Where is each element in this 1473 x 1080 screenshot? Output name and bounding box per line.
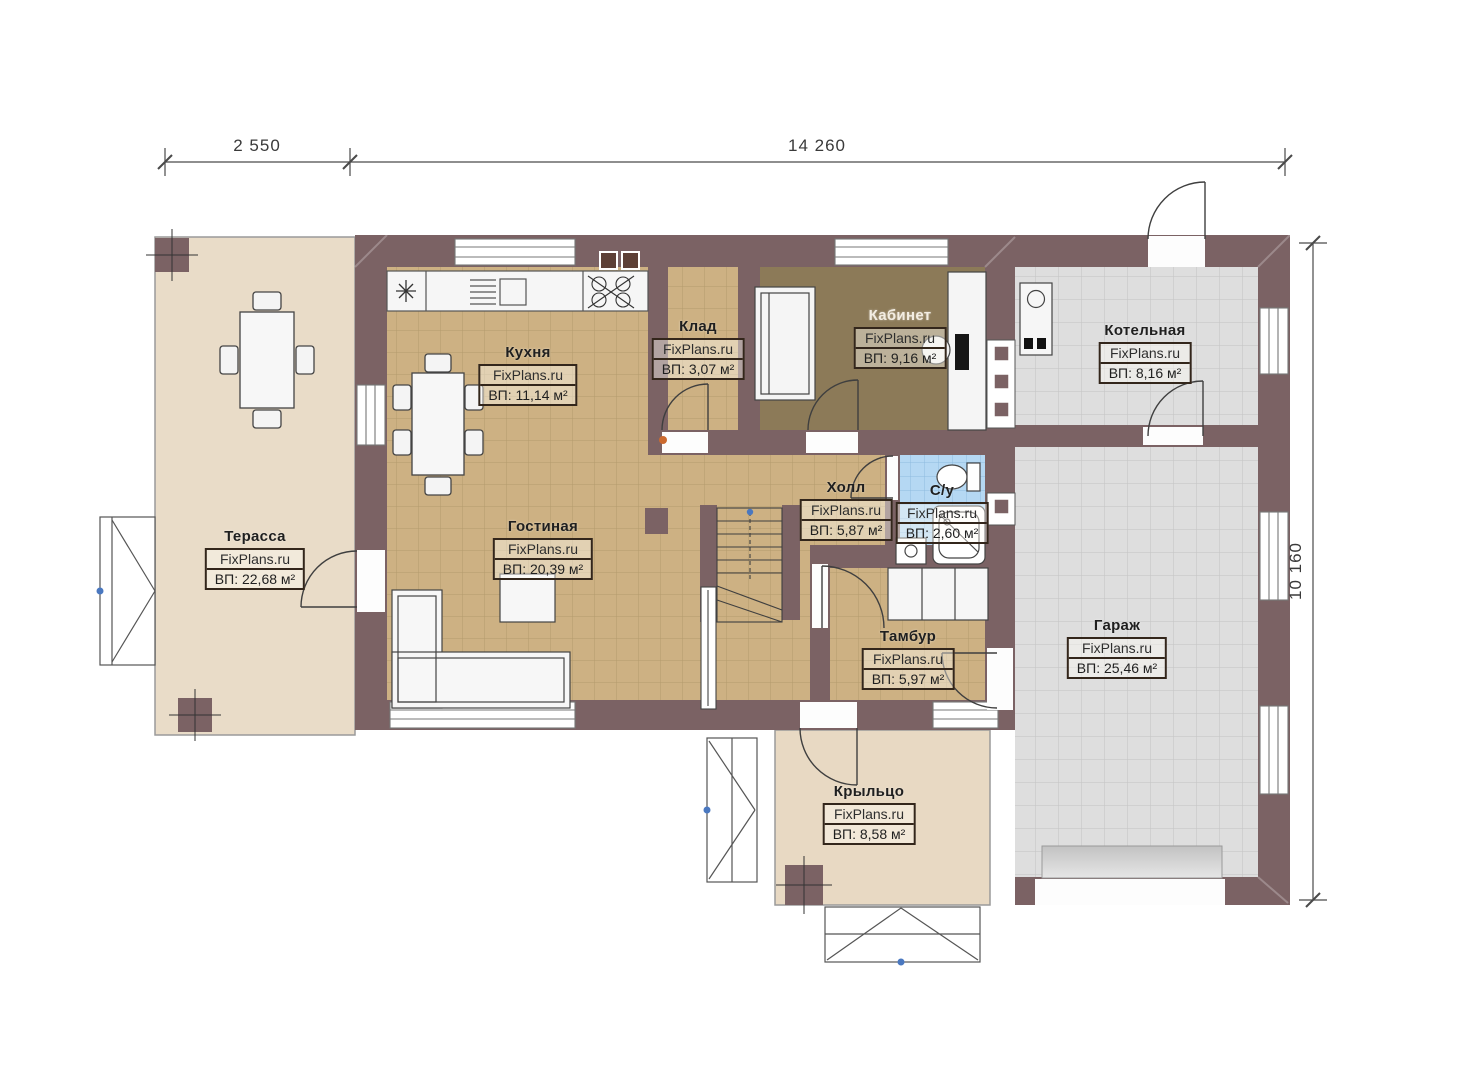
room-label-vestibule: Тамбур FixPlans.ru ВП: 5,97 м² [862, 628, 955, 690]
office-sofa [755, 287, 815, 400]
room-label-porch: Крыльцо FixPlans.ru ВП: 8,58 м² [823, 783, 916, 845]
room-name: Котельная [1099, 322, 1192, 339]
room-label-office: Кабинет FixPlans.ru ВП: 9,16 м² [854, 307, 947, 369]
watermark: FixPlans.ru [1069, 639, 1165, 659]
room-area: ВП: 20,39 м² [495, 560, 591, 578]
room-info-box: FixPlans.ru ВП: 5,97 м² [862, 648, 955, 690]
room-info-box: FixPlans.ru ВП: 22,68 м² [205, 548, 305, 590]
room-name: Кабинет [854, 307, 947, 324]
coffee-table [500, 574, 555, 622]
room-info-box: FixPlans.ru ВП: 8,58 м² [823, 803, 916, 845]
porch-area [704, 730, 991, 966]
dimension-top-main: 14 260 [788, 136, 846, 156]
room-label-kitchen: Кухня FixPlans.ru ВП: 11,14 м² [478, 344, 577, 406]
room-area: ВП: 3,07 м² [654, 360, 743, 378]
room-info-box: FixPlans.ru ВП: 11,14 м² [478, 364, 577, 406]
kitchen-counter [387, 271, 648, 311]
room-area: ВП: 8,16 м² [1101, 364, 1190, 382]
room-area: ВП: 8,58 м² [825, 825, 914, 843]
garage-east-window-2 [1260, 706, 1288, 794]
watermark: FixPlans.ru [864, 650, 953, 670]
room-info-box: FixPlans.ru ВП: 5,87 м² [800, 499, 893, 541]
room-area: ВП: 25,46 м² [1069, 659, 1165, 677]
monitor-icon [955, 334, 969, 370]
watermark: FixPlans.ru [480, 366, 575, 386]
room-label-living-room: Гостиная FixPlans.ru ВП: 20,39 м² [493, 518, 593, 580]
room-area: ВП: 2,60 м² [898, 524, 987, 542]
floor-plan-page: 2 550 14 260 10 160 Терасса FixPlans.ru … [0, 0, 1473, 1080]
threshold-marker [659, 436, 667, 444]
watermark: FixPlans.ru [898, 504, 987, 524]
watermark: FixPlans.ru [495, 540, 591, 560]
side-steps [704, 738, 758, 882]
room-name: Терасса [205, 528, 305, 545]
boiler-east-window [1260, 308, 1288, 374]
room-info-box: FixPlans.ru ВП: 25,46 м² [1067, 637, 1167, 679]
room-name: Холл [800, 479, 893, 496]
boiler-unit [1020, 283, 1052, 355]
room-label-terrace: Терасса FixPlans.ru ВП: 22,68 м² [205, 528, 305, 590]
room-info-box: FixPlans.ru ВП: 2,60 м² [896, 502, 989, 544]
room-label-hall: Холл FixPlans.ru ВП: 5,87 м² [800, 479, 893, 541]
room-info-box: FixPlans.ru ВП: 8,16 м² [1099, 342, 1192, 384]
dimension-right-side: 10 160 [1286, 542, 1306, 600]
garage-east-window-1 [1260, 512, 1288, 600]
vestibule-wardrobe [888, 568, 988, 620]
watermark: FixPlans.ru [654, 340, 743, 360]
watermark: FixPlans.ru [825, 805, 914, 825]
room-label-pantry: Клад FixPlans.ru ВП: 3,07 м² [652, 318, 745, 380]
terrace-bay-window [97, 517, 156, 665]
room-label-garage: Гараж FixPlans.ru ВП: 25,46 м² [1067, 617, 1167, 679]
watermark: FixPlans.ru [1101, 344, 1190, 364]
room-name: Клад [652, 318, 745, 335]
garage-door [1042, 846, 1222, 878]
room-area: ВП: 5,97 м² [864, 670, 953, 688]
living-column [645, 508, 668, 534]
boiler-entry-door [1148, 182, 1205, 239]
room-name: С/у [896, 482, 989, 499]
room-label-boiler-room: Котельная FixPlans.ru ВП: 8,16 м² [1099, 322, 1192, 384]
room-area: ВП: 9,16 м² [856, 349, 945, 367]
room-name: Кухня [478, 344, 577, 361]
watermark: FixPlans.ru [207, 550, 303, 570]
radiator [701, 587, 716, 709]
room-label-bathroom: С/у FixPlans.ru ВП: 2,60 м² [896, 482, 989, 544]
room-info-box: FixPlans.ru ВП: 3,07 м² [652, 338, 745, 380]
room-name: Крыльцо [823, 783, 916, 800]
kitchen-top-window [455, 239, 575, 265]
room-name: Гостиная [493, 518, 593, 535]
room-area: ВП: 11,14 м² [480, 386, 575, 404]
room-area: ВП: 5,87 м² [802, 521, 891, 539]
room-info-box: FixPlans.ru ВП: 9,16 м² [854, 327, 947, 369]
kitchen-west-window [357, 385, 385, 445]
room-name: Гараж [1067, 617, 1167, 634]
dimension-top-left: 2 550 [233, 136, 281, 156]
room-area: ВП: 22,68 м² [207, 570, 303, 588]
watermark: FixPlans.ru [856, 329, 945, 349]
room-info-box: FixPlans.ru ВП: 20,39 м² [493, 538, 593, 580]
office-top-window [835, 239, 948, 265]
room-name: Тамбур [862, 628, 955, 645]
porch-steps [825, 907, 980, 966]
watermark: FixPlans.ru [802, 501, 891, 521]
terrace-area [97, 237, 356, 735]
